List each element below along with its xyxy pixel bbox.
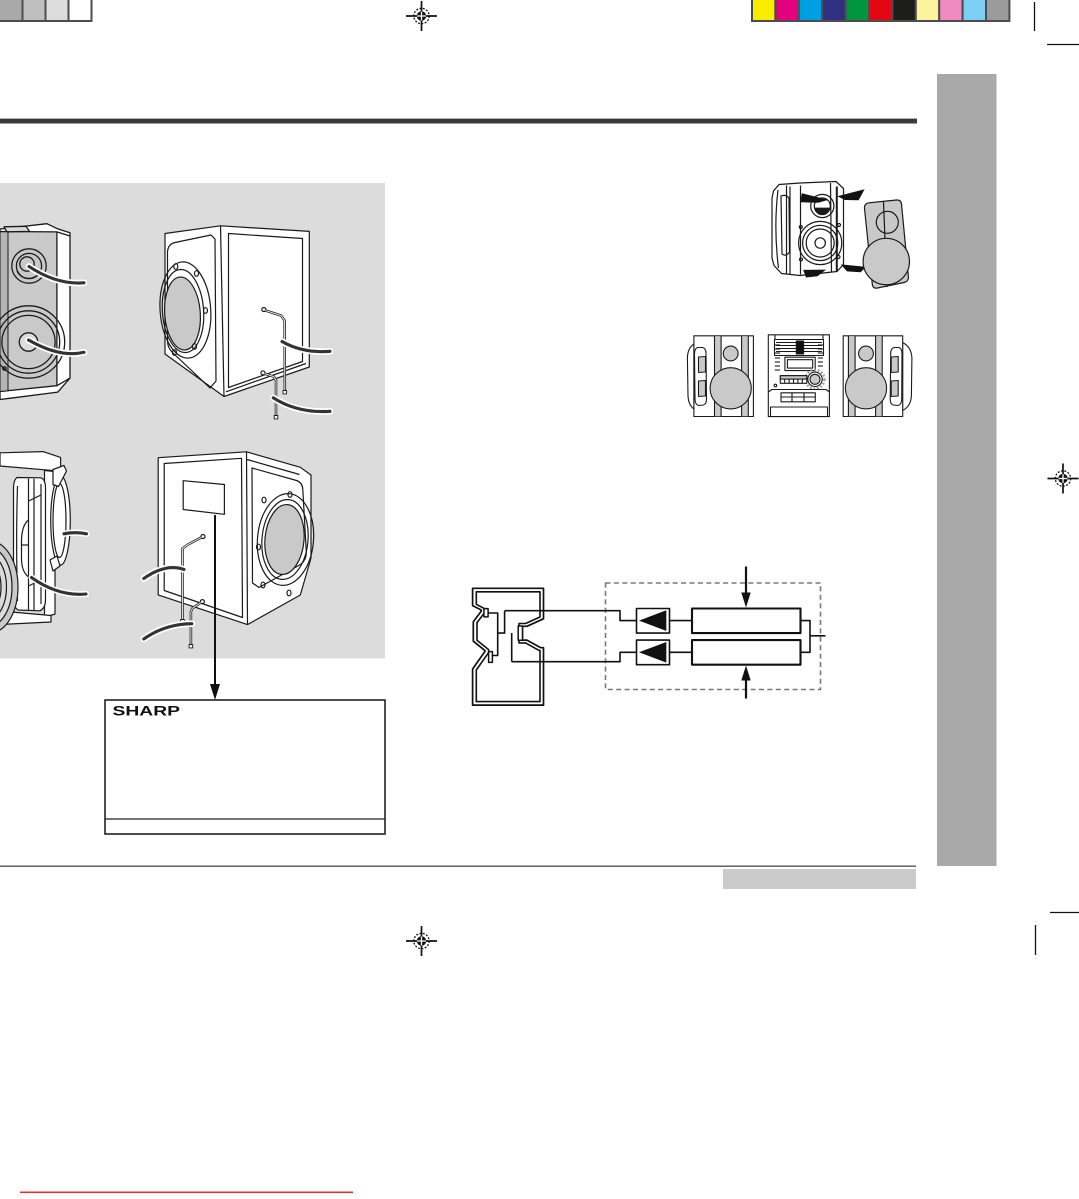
svg-text:SHARP: SHARP: [113, 704, 181, 720]
